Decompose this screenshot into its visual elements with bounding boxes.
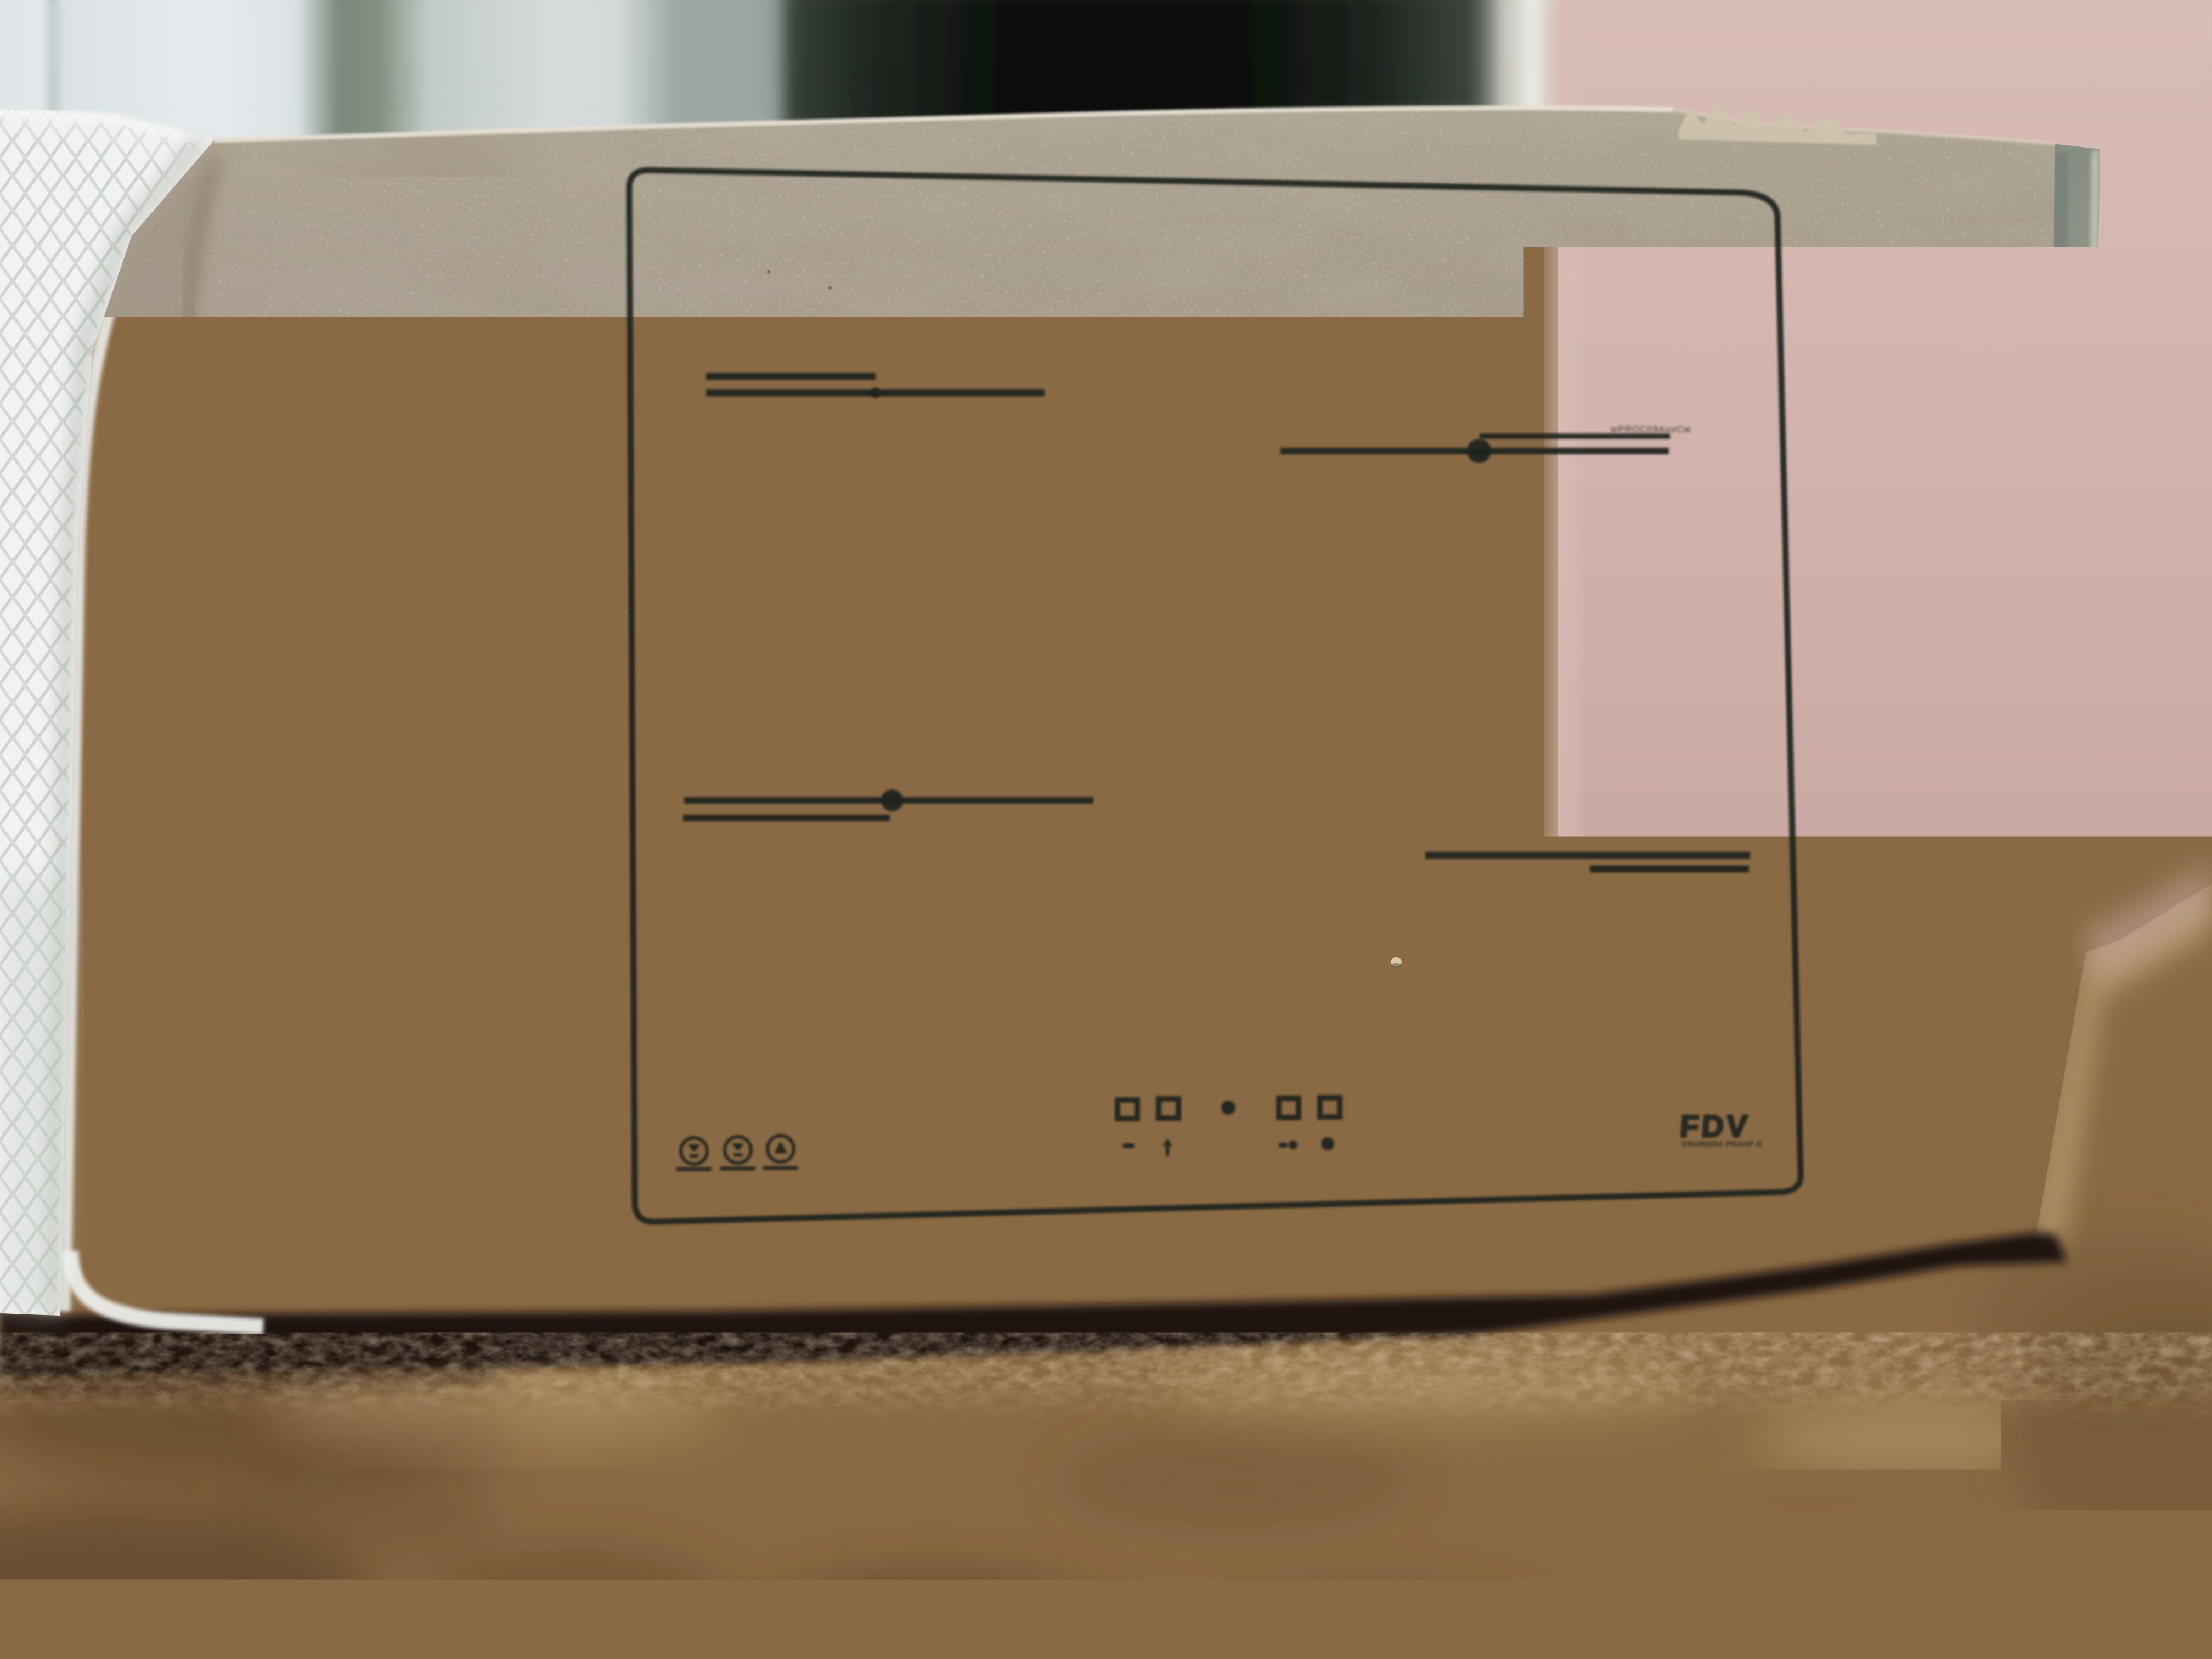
svg-text:FDV: FDV — [1679, 1109, 1751, 1143]
svg-text:ERUIBERA PRAHP R: ERUIBERA PRAHP R — [1682, 1139, 1762, 1148]
svg-text:wPROC09AuvCw: wPROC09AuvCw — [1610, 424, 1691, 435]
